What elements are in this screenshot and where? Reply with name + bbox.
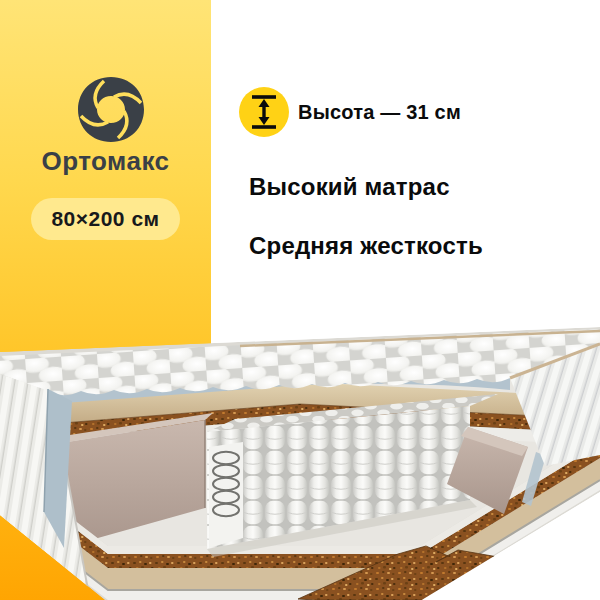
height-measure-arrow-icon — [239, 87, 289, 137]
feature-firmness: Средняя жесткость — [249, 232, 483, 260]
exposed-steel-spring — [209, 442, 243, 548]
size-badge: 80×200 см — [31, 198, 180, 240]
feature-tall-mattress: Высокий матрас — [249, 173, 450, 201]
size-badge-label: 80×200 см — [51, 207, 159, 231]
brand-logo-icon — [76, 76, 146, 144]
product-card: Ортомакс 80×200 см Высота — 31 см Высоки… — [0, 0, 600, 600]
mattress-cutaway-illustration — [0, 300, 600, 600]
brand-name: Ортомакс — [0, 146, 211, 177]
height-label: Высота — 31 см — [298, 99, 461, 125]
